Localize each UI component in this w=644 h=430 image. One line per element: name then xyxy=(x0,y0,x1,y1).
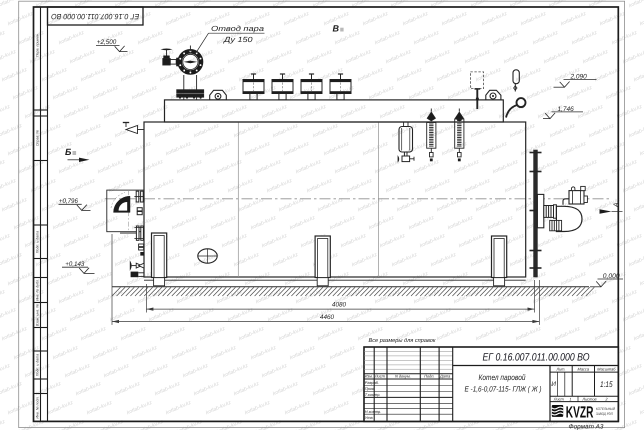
svg-text:Пров.: Пров. xyxy=(365,386,375,391)
svg-text:Подп. и дата: Подп. и дата xyxy=(36,354,40,377)
svg-text:Н.контр.: Н.контр. xyxy=(365,409,381,414)
svg-text:А: А xyxy=(613,202,620,208)
svg-text:Дата: Дата xyxy=(439,374,451,379)
svg-text:N докум.: N докум. xyxy=(395,374,411,379)
svg-text:1: 1 xyxy=(569,396,571,401)
svg-text:Все размеры для справок: Все размеры для справок xyxy=(369,337,436,344)
svg-text:Инв. № подл.: Инв. № подл. xyxy=(36,396,40,418)
svg-text:КОТЕЛЬНЫЙ: КОТЕЛЬНЫЙ xyxy=(596,406,615,411)
svg-text:Листов: Листов xyxy=(581,396,596,401)
svg-text:Разраб.: Разраб. xyxy=(365,380,379,385)
svg-text:ЕГ 0.16.007.011.00.000 ВО: ЕГ 0.16.007.011.00.000 ВО xyxy=(483,351,590,363)
svg-text:Инв. № дубл.: Инв. № дубл. xyxy=(36,279,40,301)
svg-text:В: В xyxy=(333,24,340,34)
svg-text:1:15: 1:15 xyxy=(600,380,613,389)
svg-text:+0,796: +0,796 xyxy=(59,198,78,205)
svg-text:Масштаб: Масштаб xyxy=(597,366,616,371)
svg-text:Отвод пара: Отвод пара xyxy=(211,24,264,33)
svg-text:И: И xyxy=(551,381,556,388)
svg-text:4080: 4080 xyxy=(332,302,347,309)
svg-text:ЗАВОД РЭП: ЗАВОД РЭП xyxy=(596,412,613,416)
svg-text:Масса: Масса xyxy=(578,366,590,371)
svg-text:Ду 150: Ду 150 xyxy=(223,35,254,44)
svg-text:Подп. и дата: Подп. и дата xyxy=(36,231,40,254)
svg-text:Лист: Лист xyxy=(374,374,386,379)
svg-text:Б: Б xyxy=(65,147,72,157)
svg-text:Лист: Лист xyxy=(553,396,565,401)
svg-text:Формат А3: Формат А3 xyxy=(569,423,604,430)
svg-text:Т.контр.: Т.контр. xyxy=(365,392,381,397)
svg-text:Перв. примен.: Перв. примен. xyxy=(36,33,40,57)
svg-text:+2,500: +2,500 xyxy=(97,39,117,46)
svg-text:Подп.: Подп. xyxy=(424,374,434,379)
svg-text:4460: 4460 xyxy=(320,314,335,321)
svg-text:Е -1,6-0,07-115- ГЛЖ ( Ж ): Е -1,6-0,07-115- ГЛЖ ( Ж ) xyxy=(465,384,542,393)
svg-text:Котел паровой: Котел паровой xyxy=(479,373,526,382)
svg-text:Утв.: Утв. xyxy=(365,415,374,420)
svg-text:ЕГ 0.16.007.011.00.000 ВО: ЕГ 0.16.007.011.00.000 ВО xyxy=(51,12,139,21)
svg-text:Изм.: Изм. xyxy=(365,374,373,379)
svg-text:Справ. №: Справ. № xyxy=(36,130,40,146)
svg-text:Лит.: Лит. xyxy=(555,366,565,371)
svg-text:Взам. инв. №: Взам. инв. № xyxy=(36,304,40,326)
svg-text:KVZR: KVZR xyxy=(566,403,594,421)
